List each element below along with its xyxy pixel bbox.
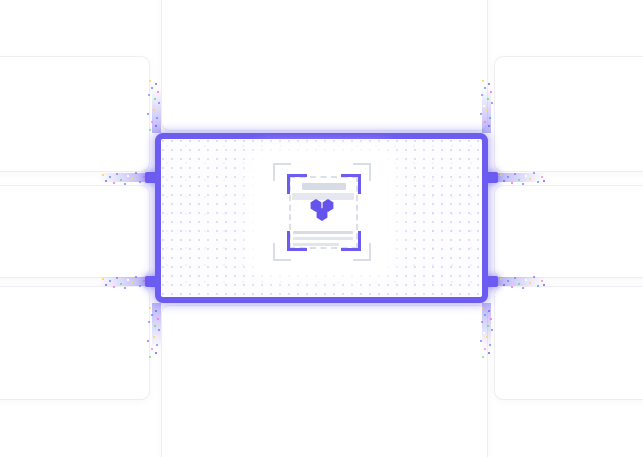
bracket-corner-icon	[287, 174, 307, 194]
right-card-2	[495, 186, 643, 277]
glow-streak-left-gap-1	[99, 173, 146, 182]
glow-streak-bottom-left	[152, 303, 161, 349]
document-scan-icon	[273, 163, 371, 261]
noise-speckle	[498, 171, 500, 173]
glow-streak-left-gap-2	[99, 277, 146, 286]
noise-speckle	[100, 171, 102, 173]
diagram-canvas	[0, 0, 643, 457]
glow-streak-top-left	[152, 87, 161, 133]
bottom-card	[162, 306, 487, 457]
left-card-3	[0, 287, 149, 399]
bracket-corner-icon	[287, 231, 307, 251]
glow-streak-right-gap-2	[497, 277, 544, 286]
bracket-corner-icon	[341, 174, 361, 194]
top-card	[162, 0, 487, 130]
glow-streak-right-gap-1	[497, 173, 544, 182]
right-card-1	[495, 57, 643, 171]
left-card-1	[0, 57, 149, 171]
scan-bracket-frame-icon	[287, 174, 361, 251]
bracket-corner-icon	[341, 231, 361, 251]
left-card-2	[0, 186, 149, 277]
right-card-3	[495, 287, 643, 399]
